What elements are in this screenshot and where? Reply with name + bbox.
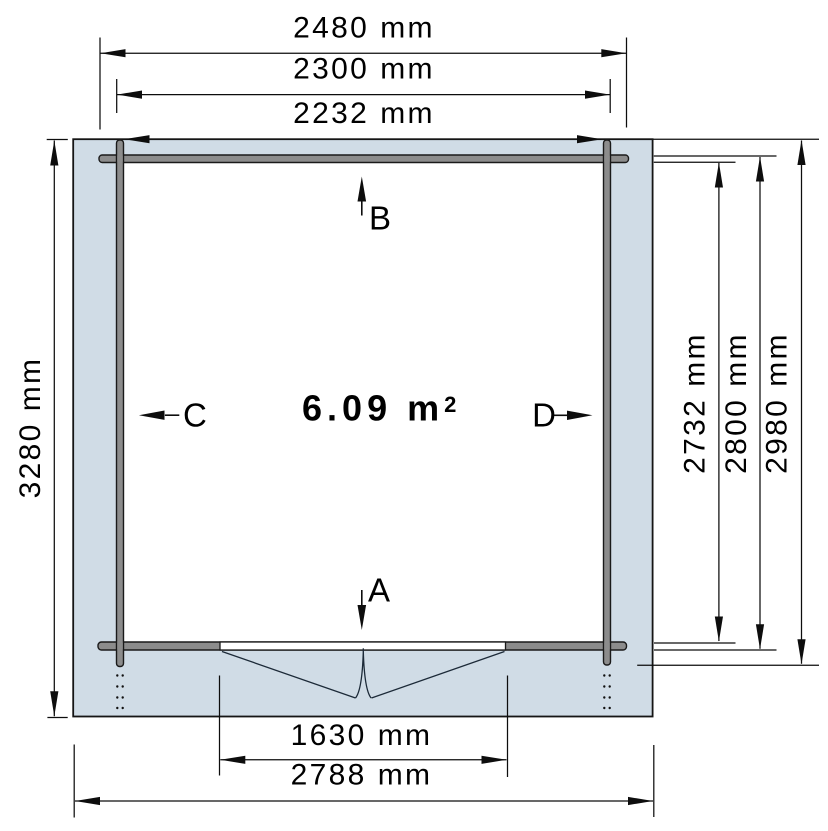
svg-text:2732 mm: 2732 mm — [678, 332, 711, 474]
svg-text:D: D — [532, 397, 556, 434]
svg-text:A: A — [368, 572, 390, 609]
svg-text:3280 mm: 3280 mm — [14, 357, 47, 499]
svg-text:2480 mm: 2480 mm — [293, 12, 435, 45]
svg-text:2980 mm: 2980 mm — [760, 332, 793, 474]
svg-text:2232 mm: 2232 mm — [293, 97, 435, 130]
svg-text:2300 mm: 2300 mm — [293, 53, 435, 86]
svg-text:1630 mm: 1630 mm — [291, 719, 433, 752]
svg-text:B: B — [369, 200, 391, 237]
svg-text:C: C — [183, 397, 207, 434]
svg-text:2800 mm: 2800 mm — [720, 332, 753, 474]
svg-text:2788 mm: 2788 mm — [291, 759, 433, 792]
svg-text:6.09 m2: 6.09 m2 — [302, 388, 461, 429]
